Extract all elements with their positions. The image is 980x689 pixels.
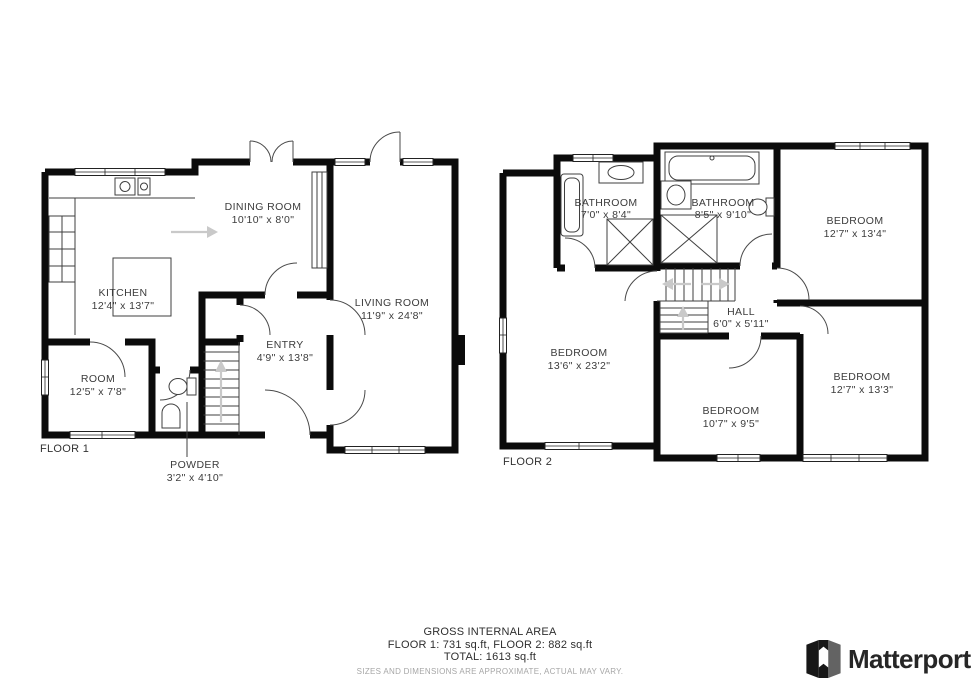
- door: [330, 390, 365, 425]
- sink-icon: [661, 181, 691, 209]
- stairs-arrow-right: [701, 278, 730, 290]
- window: [835, 143, 910, 150]
- door: [565, 238, 595, 268]
- room-label-hall-dims: 6'0" x 5'11": [713, 318, 769, 330]
- sink-icon: [138, 178, 150, 195]
- stove-icon: [49, 216, 75, 282]
- window: [803, 455, 887, 462]
- window: [545, 443, 612, 450]
- room-label-bedroom-br-name: BEDROOM: [833, 371, 890, 383]
- room-label-bedroom-tr-dims: 12'7" x 13'4": [824, 228, 887, 240]
- room-label-bedroom-left-dims: 13'6" x 23'2": [548, 360, 611, 372]
- floor1-label: FLOOR 1: [40, 443, 89, 455]
- powder-fixtures: [162, 378, 196, 428]
- room-label-entry-name: ENTRY: [266, 339, 303, 351]
- door: [265, 263, 297, 295]
- floor1-plan: DINING ROOM 10'10" x 8'0" KITCHEN 12'4" …: [35, 120, 505, 490]
- room-label-bedroom-left-name: BEDROOM: [550, 347, 607, 359]
- room-label-bedroom-bm-name: BEDROOM: [702, 405, 759, 417]
- room-label-living-dims: 11'9" x 24'8": [361, 310, 423, 322]
- door: [777, 268, 809, 300]
- room-label-hall-name: HALL: [727, 306, 755, 318]
- sink-icon: [162, 404, 180, 428]
- door: [90, 342, 125, 377]
- shelving: [312, 172, 327, 268]
- room-label-entry-dims: 4'9" x 13'8": [257, 352, 314, 364]
- room-label-bedroom-br-dims: 12'7" x 13'3": [831, 384, 894, 396]
- bathtub-icon: [665, 152, 759, 184]
- room-label-powder-name: POWDER: [170, 459, 220, 471]
- stairs-arrow-up: [677, 306, 689, 330]
- window: [335, 159, 365, 166]
- window: [573, 155, 613, 162]
- door: [625, 271, 657, 301]
- window: [42, 360, 49, 395]
- matterport-m-icon: [806, 640, 841, 678]
- room-label-bedroom-bm-dims: 10'7" x 9'5": [703, 418, 760, 430]
- room-label-bedroom-tr-name: BEDROOM: [826, 215, 883, 227]
- room-label-room-name: ROOM: [81, 373, 115, 385]
- shower-icon: [607, 219, 653, 265]
- door: [729, 336, 761, 368]
- floorplan-page: DINING ROOM 10'10" x 8'0" KITCHEN 12'4" …: [0, 0, 980, 689]
- floor2-plan: BATHROOM 7'0" x 8'4" BATHROOM 8'5" x 9'1…: [495, 118, 945, 488]
- chimney: [455, 335, 465, 365]
- shower-icon: [661, 215, 717, 263]
- floor2-label: FLOOR 2: [503, 456, 552, 468]
- door: [250, 141, 271, 162]
- room-label-bathroom1-dims: 7'0" x 8'4": [581, 209, 631, 221]
- toilet-icon: [169, 379, 187, 395]
- room-label-kitchen-name: KITCHEN: [99, 287, 148, 299]
- matterport-logo-text: Matterport: [848, 644, 971, 675]
- footer-title: GROSS INTERNAL AREA: [0, 626, 980, 639]
- stairs: [204, 342, 240, 435]
- door: [740, 234, 772, 266]
- window: [500, 318, 507, 353]
- room-label-bathroom2-dims: 8'5" x 9'10": [695, 209, 752, 221]
- sink-icon: [599, 162, 643, 183]
- window: [75, 169, 165, 176]
- matterport-logo: Matterport: [806, 640, 971, 678]
- room-label-dining-dims: 10'10" x 8'0": [232, 214, 295, 226]
- room-label-bathroom2-name: BATHROOM: [691, 197, 754, 209]
- window: [70, 432, 135, 439]
- door: [265, 390, 310, 435]
- room-label-living-name: LIVING ROOM: [355, 297, 429, 309]
- door: [370, 132, 400, 162]
- door: [240, 305, 270, 335]
- door: [800, 306, 828, 334]
- room-label-dining-name: DINING ROOM: [225, 201, 302, 213]
- window: [345, 447, 425, 454]
- door: [272, 141, 293, 162]
- window: [403, 159, 433, 166]
- room-label-bathroom1-name: BATHROOM: [574, 197, 637, 209]
- direction-arrow: [171, 226, 218, 238]
- room-label-powder-dims: 3'2" x 4'10": [167, 472, 224, 484]
- sink-icon: [115, 178, 135, 195]
- room-label-kitchen-dims: 12'4" x 13'7": [92, 300, 155, 312]
- window: [717, 455, 760, 462]
- room-label-room-dims: 12'5" x 7'8": [70, 386, 127, 398]
- toilet-icon: [187, 378, 196, 395]
